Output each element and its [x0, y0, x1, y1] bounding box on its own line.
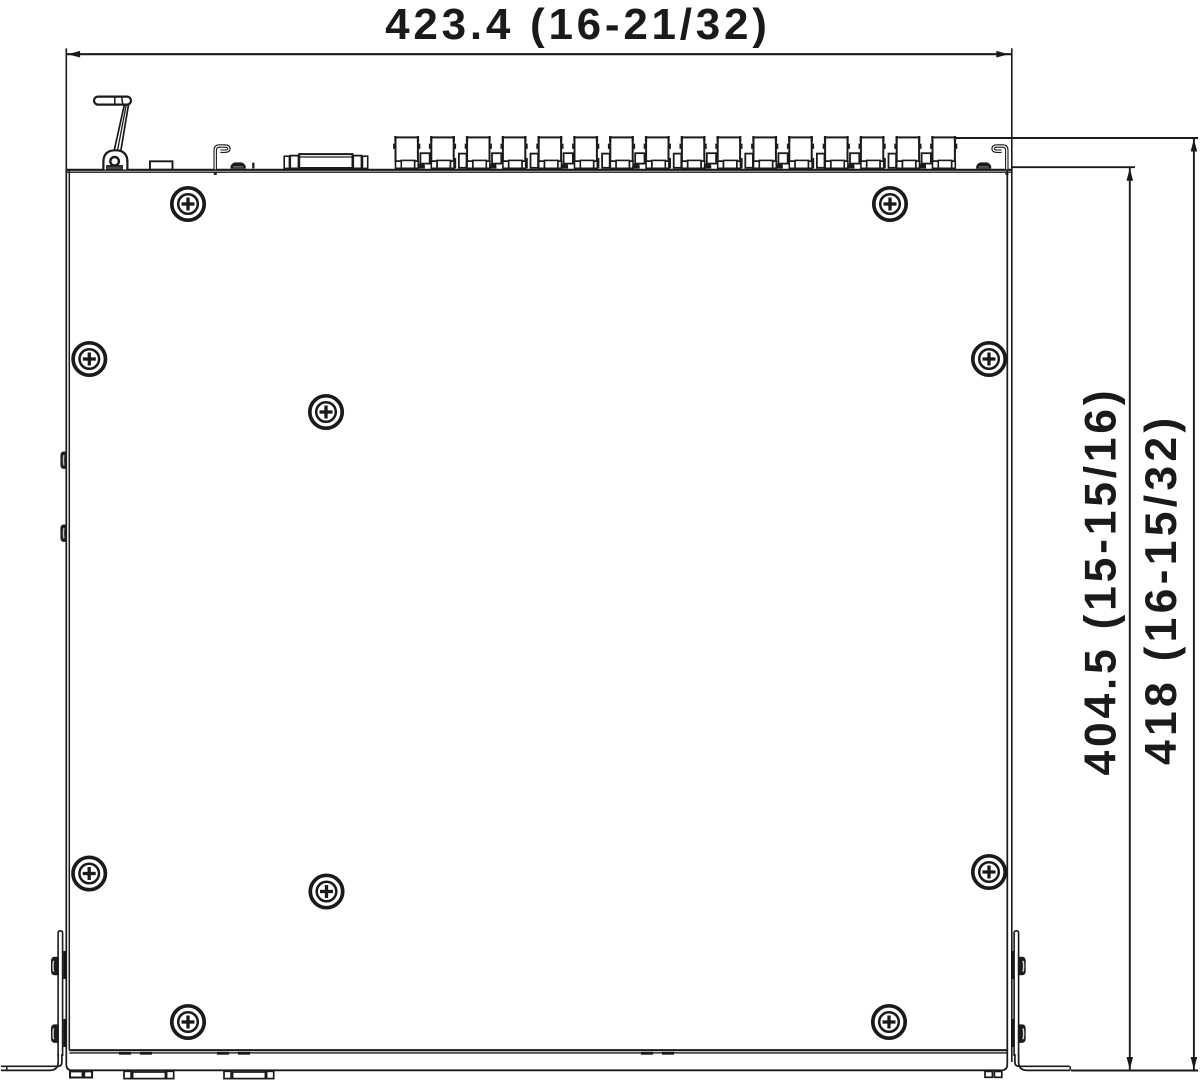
svg-text:418 (16-15/32): 418 (16-15/32)	[1137, 414, 1186, 765]
svg-text:404.5 (15-15/16): 404.5 (15-15/16)	[1076, 387, 1125, 776]
svg-text:423.4 (16-21/32): 423.4 (16-21/32)	[385, 0, 771, 49]
